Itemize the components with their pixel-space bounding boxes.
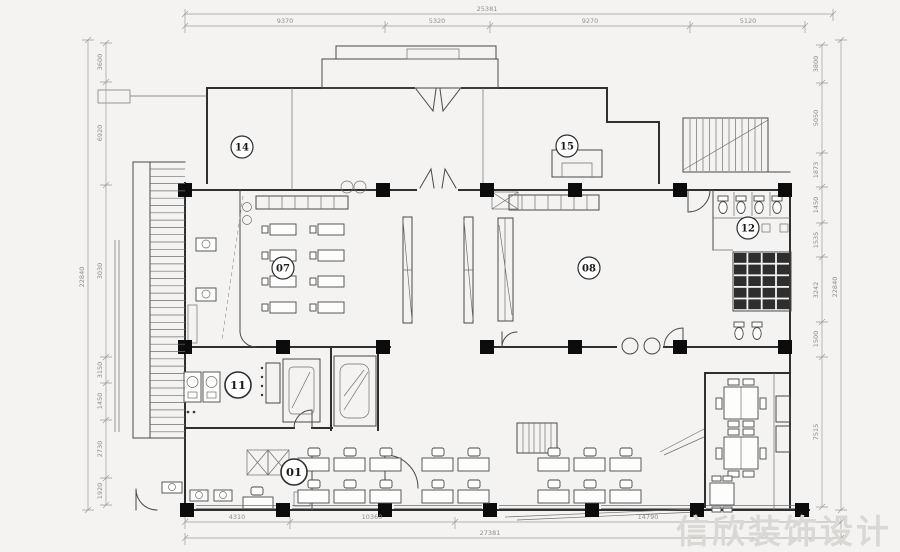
room-number: 01 (286, 465, 302, 479)
room-badge-11: 11 (225, 372, 251, 398)
corridor-display-cases (403, 217, 473, 323)
room-badge-07: 07 (272, 257, 294, 279)
dim-label: 1500 (812, 331, 820, 348)
dim-label: 10360 (362, 513, 383, 521)
dim-label: 1535 (812, 232, 820, 249)
dim-label: 3242 (812, 282, 820, 299)
room-11-furniture (184, 359, 320, 422)
meeting-area (660, 373, 790, 512)
office-workstations (298, 448, 641, 503)
dim-label: 5320 (429, 17, 446, 25)
room-number: 14 (235, 143, 249, 154)
dim-label: 1450 (812, 197, 820, 214)
left-stair-treads (150, 169, 185, 432)
dim-label: 3030 (96, 263, 104, 280)
room-number: 08 (582, 264, 596, 275)
dim-label: 14790 (638, 513, 659, 521)
shelving-block (734, 253, 789, 309)
room-badge-01: 01 (281, 459, 307, 485)
room-number: 12 (741, 224, 755, 235)
room-badge-15: 15 (556, 135, 578, 157)
dim-label: 9370 (277, 17, 294, 25)
generated-plan-elements (150, 119, 809, 517)
dim-label: 22840 (831, 277, 839, 298)
dim-label: 3150 (96, 362, 104, 379)
dim-label: 1450 (96, 393, 104, 410)
entry-canopy (322, 46, 498, 88)
room-badge-08: 08 (578, 257, 600, 279)
dim-label: 5050 (812, 110, 820, 127)
dim-label: 3800 (812, 56, 820, 73)
plan-geometry (98, 46, 809, 520)
room-badge-14: 14 (231, 136, 253, 158)
dim-label: 25381 (477, 5, 498, 13)
hall-partitions (292, 88, 602, 193)
room-badge-12: 12 (737, 217, 759, 239)
room-number: 15 (560, 142, 574, 153)
room-07-furniture (188, 196, 348, 343)
floor-plan-sheet: 2538193705320927051204310103601479027381… (0, 0, 900, 552)
dim-label: 7515 (812, 424, 820, 441)
dim-label: 4310 (229, 513, 246, 521)
floor-plan-drawing: 2538193705320927051204310103601479027381… (0, 0, 900, 552)
dim-label: 9270 (582, 17, 599, 25)
watermark: 信欣装饰设计 (676, 512, 892, 551)
dim-label: 3600 (96, 54, 104, 71)
dim-label: 27381 (480, 529, 501, 537)
dim-label: 1920 (96, 483, 104, 500)
room-number: 07 (276, 264, 290, 275)
dim-label: 22840 (78, 267, 86, 288)
sofa-room (334, 356, 376, 426)
door-symbols (136, 89, 710, 510)
dim-label: 5120 (740, 17, 757, 25)
dim-label: 1873 (812, 162, 820, 179)
room-number: 11 (230, 378, 246, 392)
room-08-furniture (492, 192, 660, 354)
dim-label: 6920 (96, 125, 104, 142)
dim-label: 2730 (96, 441, 104, 458)
